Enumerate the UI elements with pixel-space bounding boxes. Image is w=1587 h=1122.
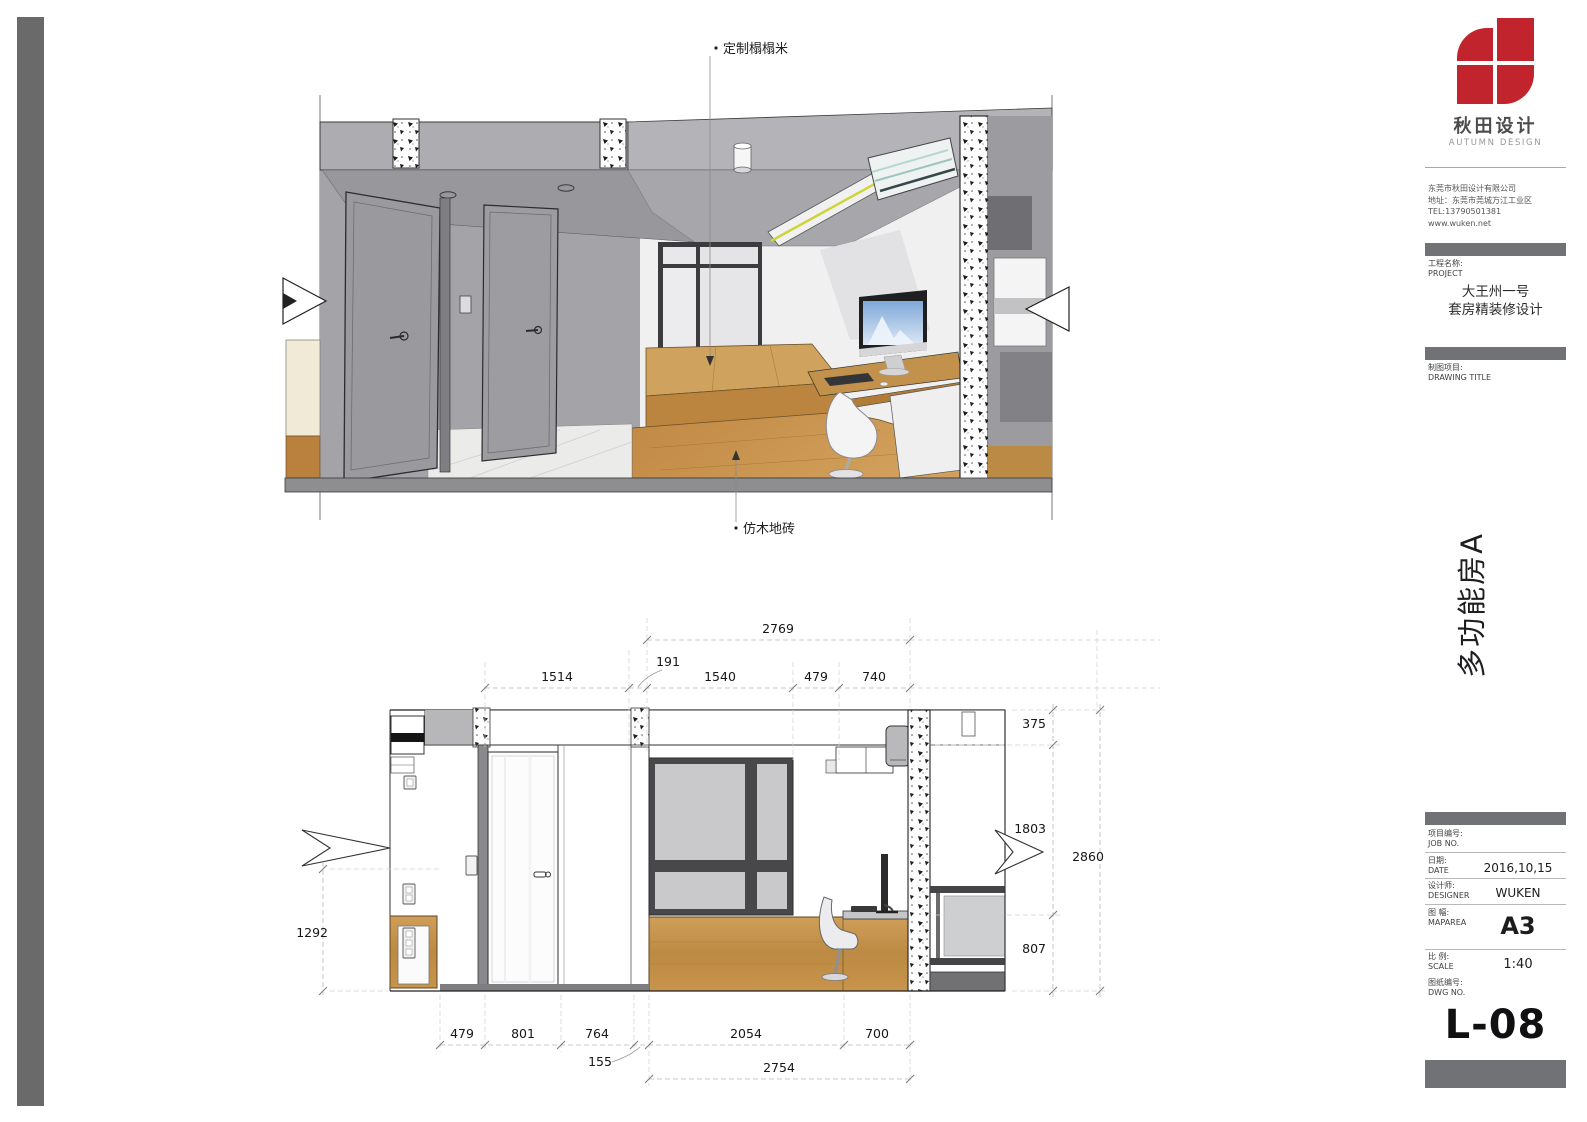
side-wood-floor <box>286 436 320 478</box>
dim-label: 155 <box>588 1054 612 1069</box>
company-line: TEL:13790501381 <box>1428 206 1566 218</box>
break-symbol-left <box>302 830 390 866</box>
light-switch-3d <box>460 296 471 313</box>
divider <box>1425 878 1566 879</box>
divider <box>1425 949 1566 950</box>
scale-value: 1:40 <box>1470 957 1566 972</box>
section-bar <box>1425 1060 1566 1088</box>
hatch-wall-column-3d <box>960 116 988 480</box>
company-name-cn: 秋田设计 <box>1425 112 1566 138</box>
door-1 <box>344 192 440 482</box>
title-block: 秋田设计 AUTUMN DESIGN 东莞市秋田设计有限公司 地址：东莞市莞城万… <box>1425 0 1566 1122</box>
drawing-title-label: 制图项目: DRAWING TITLE <box>1428 363 1491 383</box>
company-logo-icon <box>1457 18 1534 106</box>
date-value: 2016,10,15 <box>1470 861 1566 875</box>
company-info: 东莞市秋田设计有限公司 地址：东莞市莞城万江工业区 TEL:1379050138… <box>1428 183 1566 229</box>
door-track-post <box>478 745 488 988</box>
dim-label: 807 <box>1022 941 1046 956</box>
field-job: 项目编号: JOB NO. <box>1428 829 1463 849</box>
beam-hatch-column <box>600 119 626 168</box>
dim-bottom-overall: 2754 <box>763 1060 795 1075</box>
company-line: 东莞市秋田设计有限公司 <box>1428 183 1566 195</box>
dwg-number-value: L-08 <box>1425 1002 1566 1048</box>
mouse-3d <box>880 382 888 386</box>
side-cabinet <box>286 340 320 436</box>
field-maparea: 图 幅: MAPAREA <box>1428 908 1466 928</box>
company-line: 地址：东莞市莞城万江工业区 <box>1428 195 1566 207</box>
section-bar <box>1425 812 1566 825</box>
field-date: 日期: DATE <box>1428 856 1449 876</box>
divider <box>1425 904 1566 905</box>
hatch-wall-column-elevation <box>908 710 930 991</box>
elevation-view <box>302 708 1043 991</box>
pendant-light <box>962 712 975 736</box>
door-elevation <box>488 752 558 986</box>
drawing-canvas: 定制榻榻米 仿木地砖 <box>0 0 1587 1122</box>
perspective-view: 定制榻榻米 仿木地砖 <box>283 42 1069 537</box>
cylinder-light <box>734 143 751 173</box>
field-designer: 设计师: DESIGNER <box>1428 881 1469 901</box>
wall-cabinet-elevation <box>826 747 893 773</box>
dim-label: 700 <box>865 1026 889 1041</box>
dim-label: 479 <box>804 669 828 684</box>
dim-top-overall: 2769 <box>762 621 794 636</box>
dim-label: 740 <box>862 669 886 684</box>
dim-label: 764 <box>585 1026 609 1041</box>
section-bar <box>1425 243 1566 256</box>
railing-bottom <box>930 958 1005 965</box>
dim-label: 2054 <box>730 1026 762 1041</box>
desk-top <box>843 911 908 919</box>
drawing-title-vertical: 多功能房A <box>1452 495 1492 715</box>
maparea-value: A3 <box>1470 912 1566 940</box>
ac-unit-elevation <box>886 726 910 766</box>
concrete-beam <box>320 122 628 170</box>
floor-slab-section <box>285 478 1052 492</box>
break-symbol-right <box>995 830 1043 874</box>
railing-top <box>930 886 1005 893</box>
adjacent-room-glimpse <box>988 116 1052 480</box>
dim-label: 801 <box>511 1026 535 1041</box>
designer-value: WUKEN <box>1470 886 1566 900</box>
project-name: 大王州一号 套房精装修设计 <box>1425 283 1566 319</box>
keyboard-elevation <box>851 906 877 912</box>
beam-hatch-column <box>393 119 419 168</box>
switch-plates <box>403 776 477 958</box>
door-post <box>440 198 450 472</box>
drawing-sheet: { "page": { "logo": { "cn": "秋田设计", "en"… <box>0 0 1587 1122</box>
field-scale: 比 例: SCALE <box>1428 952 1454 972</box>
section-bar <box>1425 347 1566 360</box>
dim-label: 1803 <box>1014 821 1046 836</box>
dim-label: 1540 <box>704 669 736 684</box>
dim-label: 479 <box>450 1026 474 1041</box>
divider <box>1425 852 1566 853</box>
dim-label: 1514 <box>541 669 573 684</box>
field-dwg: 图纸编号: DWG NO. <box>1428 978 1465 998</box>
monitor-elevation <box>851 854 898 912</box>
beam-hatch <box>631 708 649 747</box>
left-wall-items <box>391 716 424 773</box>
project-label: 工程名称: PROJECT <box>1428 259 1463 279</box>
floor-label: 仿木地砖 <box>743 522 795 537</box>
balcony-elevation <box>930 710 1005 991</box>
floor-section-strip <box>440 984 649 991</box>
window-elevation <box>649 758 793 915</box>
dim-right-overall: 2860 <box>1072 849 1104 864</box>
dim-label: 375 <box>1022 716 1046 731</box>
dim-left: 1292 <box>296 925 328 940</box>
dim-label: 191 <box>656 654 680 669</box>
door-handle-elevation <box>534 872 546 877</box>
balcony-floor <box>930 972 1005 991</box>
beam-hatch <box>473 708 490 747</box>
platform-desk-elevation <box>649 911 908 991</box>
tatami-label: 定制榻榻米 <box>723 42 788 57</box>
company-name-en: AUTUMN DESIGN <box>1425 138 1566 148</box>
railing-panel <box>944 896 1005 956</box>
company-line: www.wuken.net <box>1428 218 1566 230</box>
door-2 <box>482 205 558 461</box>
divider <box>1425 167 1566 168</box>
